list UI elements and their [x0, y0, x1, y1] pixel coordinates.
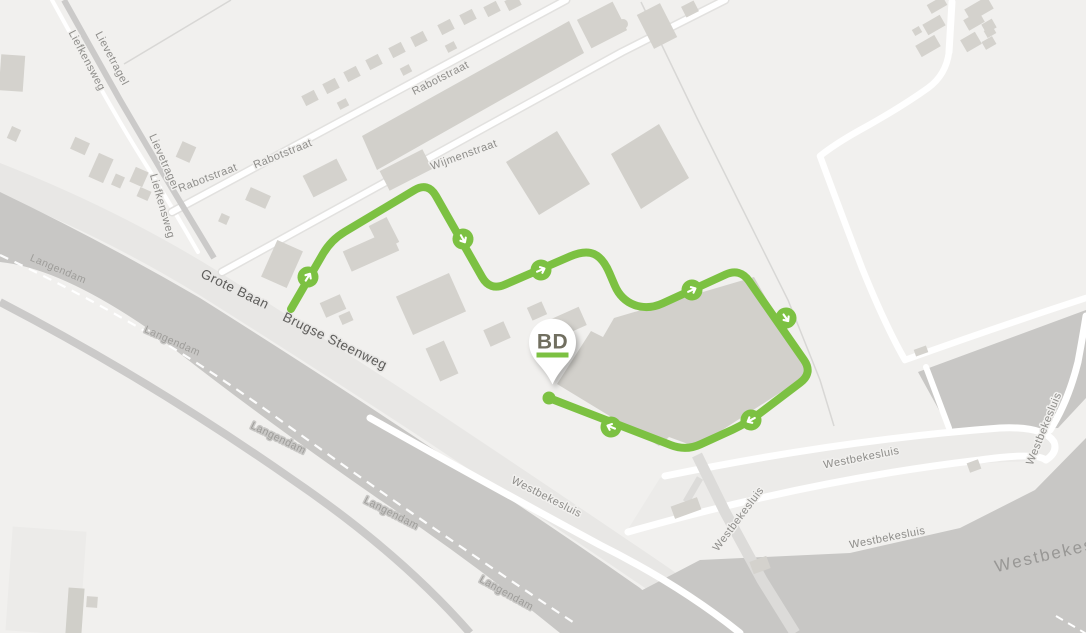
building	[65, 587, 84, 633]
building	[0, 54, 25, 92]
building	[86, 596, 98, 608]
route-end-dot	[543, 392, 556, 405]
map-canvas[interactable]: LiefkenswegLievetragelLievetragelLiefken…	[0, 0, 1086, 633]
pin-label: BD	[537, 331, 568, 354]
road-topright-deadend	[949, 2, 952, 52]
building-tank	[618, 19, 628, 29]
pin-label-underline	[537, 353, 569, 358]
